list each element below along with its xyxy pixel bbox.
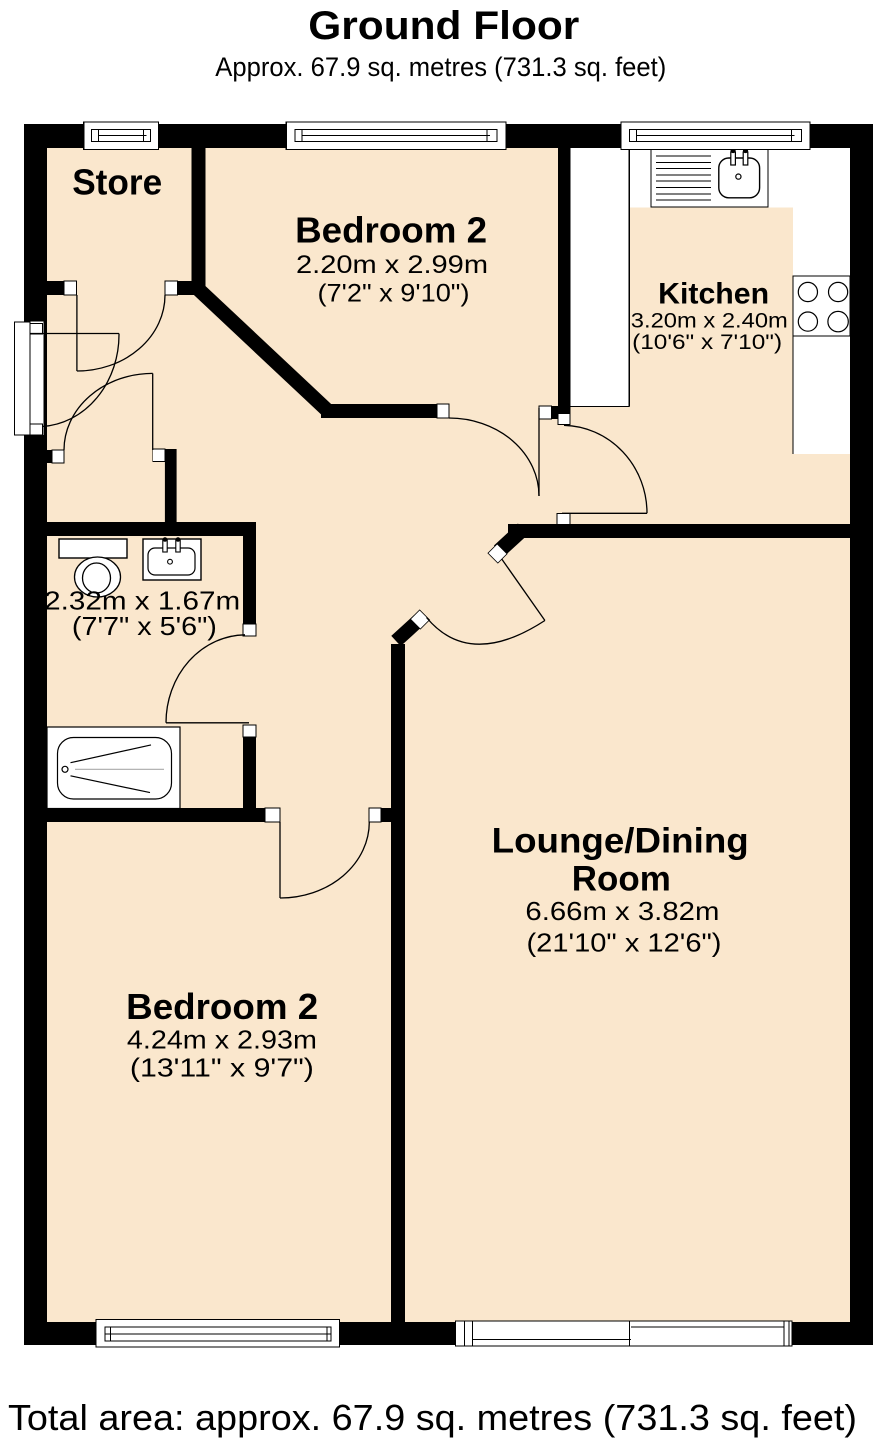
svg-text:3.20m x 2.40m: 3.20m x 2.40m [631, 310, 788, 333]
svg-text:Bedroom 2: Bedroom 2 [126, 986, 318, 1027]
svg-text:Ground Floor: Ground Floor [308, 4, 579, 48]
svg-text:(7'7" x 5'6"): (7'7" x 5'6") [72, 611, 217, 641]
svg-text:(21'10" x 12'6"): (21'10" x 12'6") [527, 928, 722, 958]
svg-text:Approx. 67.9 sq. metres (731.3: Approx. 67.9 sq. metres (731.3 sq. feet) [215, 52, 666, 82]
svg-text:Bedroom 2: Bedroom 2 [295, 210, 487, 251]
svg-text:4.24m x 2.93m: 4.24m x 2.93m [127, 1025, 317, 1055]
svg-text:(10'6" x 7'10"): (10'6" x 7'10") [632, 331, 782, 354]
svg-text:(13'11" x 9'7"): (13'11" x 9'7") [130, 1053, 314, 1083]
svg-text:(7'2" x 9'10"): (7'2" x 9'10") [318, 280, 470, 308]
svg-text:Lounge/Dining: Lounge/Dining [492, 822, 749, 861]
svg-text:2.20m x 2.99m: 2.20m x 2.99m [296, 251, 488, 279]
svg-text:Room: Room [572, 860, 671, 899]
svg-text:6.66m x 3.82m: 6.66m x 3.82m [525, 896, 719, 926]
svg-text:Store: Store [72, 162, 162, 203]
svg-text:Kitchen: Kitchen [658, 277, 769, 310]
svg-text:Total area: approx. 67.9 sq. m: Total area: approx. 67.9 sq. metres (731… [8, 1397, 857, 1438]
